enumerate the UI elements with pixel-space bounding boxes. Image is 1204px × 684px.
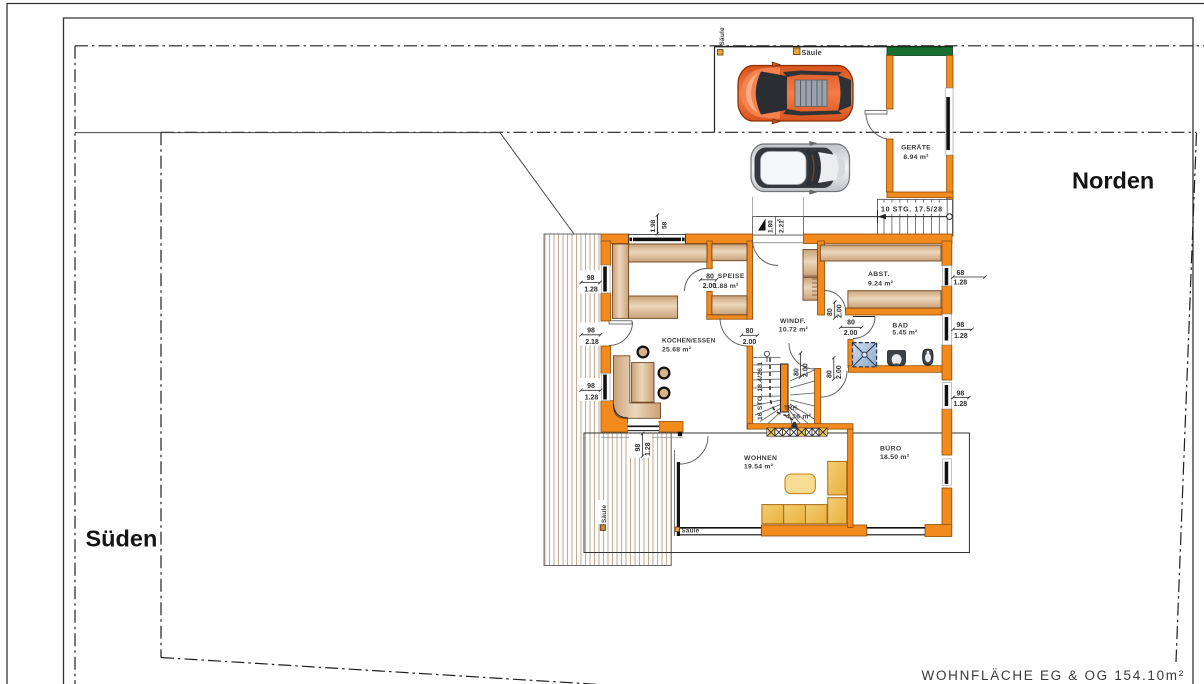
svg-text:ABST.: ABST.: [868, 271, 890, 278]
svg-text:80: 80: [847, 320, 855, 327]
svg-text:80: 80: [706, 273, 714, 280]
svg-text:2.00: 2.00: [743, 339, 757, 346]
svg-text:98: 98: [957, 391, 965, 398]
svg-text:68: 68: [957, 270, 965, 277]
svg-text:80: 80: [827, 308, 834, 316]
svg-text:WINDF.: WINDF.: [780, 318, 806, 325]
svg-text:1.28: 1.28: [645, 442, 652, 456]
svg-text:2.00: 2.00: [803, 363, 810, 377]
svg-text:Säule: Säule: [719, 27, 726, 45]
svg-text:19.54 m²: 19.54 m²: [744, 464, 774, 471]
svg-text:80: 80: [746, 328, 754, 335]
svg-text:Säule: Säule: [802, 48, 822, 57]
svg-text:WOHNFLÄCHE EG & OG 154.10m²: WOHNFLÄCHE EG & OG 154.10m²: [922, 668, 1185, 683]
svg-text:10.72 m²: 10.72 m²: [779, 327, 809, 334]
svg-text:8.94 m²: 8.94 m²: [903, 154, 929, 161]
svg-text:1.28: 1.28: [954, 401, 968, 408]
svg-text:25.68 m²: 25.68 m²: [662, 347, 692, 354]
svg-text:Säule: Säule: [682, 528, 700, 535]
svg-text:58: 58: [662, 221, 669, 229]
svg-text:2.00: 2.00: [836, 365, 843, 379]
svg-text:98: 98: [587, 383, 595, 390]
svg-text:80: 80: [794, 368, 801, 376]
svg-text:10 STG. 17.5/28: 10 STG. 17.5/28: [881, 207, 942, 214]
svg-text:1.28: 1.28: [954, 333, 968, 340]
svg-text:WOHNEN: WOHNEN: [744, 455, 777, 462]
svg-text:18.50 m²: 18.50 m²: [880, 454, 910, 461]
svg-text:4.36 m²: 4.36 m²: [786, 414, 812, 421]
svg-text:9.24 m²: 9.24 m²: [868, 281, 894, 288]
svg-text:98: 98: [635, 444, 642, 452]
svg-text:BAD: BAD: [892, 323, 908, 330]
svg-text:TRH.: TRH.: [784, 406, 799, 412]
svg-text:GERÄTE: GERÄTE: [901, 144, 931, 152]
svg-text:BÜRO: BÜRO: [880, 444, 902, 453]
svg-text:1.88 m²: 1.88 m²: [713, 283, 739, 290]
svg-text:1.98: 1.98: [650, 219, 657, 232]
svg-text:Süden: Süden: [86, 526, 158, 552]
svg-text:1.28: 1.28: [585, 395, 599, 402]
svg-text:Norden: Norden: [1072, 168, 1154, 194]
svg-text:5.45 m²: 5.45 m²: [892, 330, 918, 337]
svg-text:2.00: 2.00: [844, 330, 858, 337]
svg-text:98: 98: [587, 328, 595, 335]
svg-text:1.80: 1.80: [768, 220, 775, 233]
svg-text:Säule: Säule: [601, 505, 608, 523]
svg-text:1.28: 1.28: [584, 287, 598, 294]
svg-text:98: 98: [957, 322, 965, 329]
svg-text:98: 98: [587, 275, 595, 282]
svg-text:16 STG. 18.4/26.1: 16 STG. 18.4/26.1: [757, 362, 764, 420]
svg-text:80: 80: [827, 370, 834, 378]
svg-text:SPEISE: SPEISE: [718, 273, 745, 280]
svg-text:KOCHEN/ESSEN: KOCHEN/ESSEN: [662, 338, 716, 345]
svg-text:2.18: 2.18: [585, 339, 599, 346]
svg-text:2.00: 2.00: [837, 304, 844, 318]
svg-text:1.28: 1.28: [954, 280, 968, 287]
